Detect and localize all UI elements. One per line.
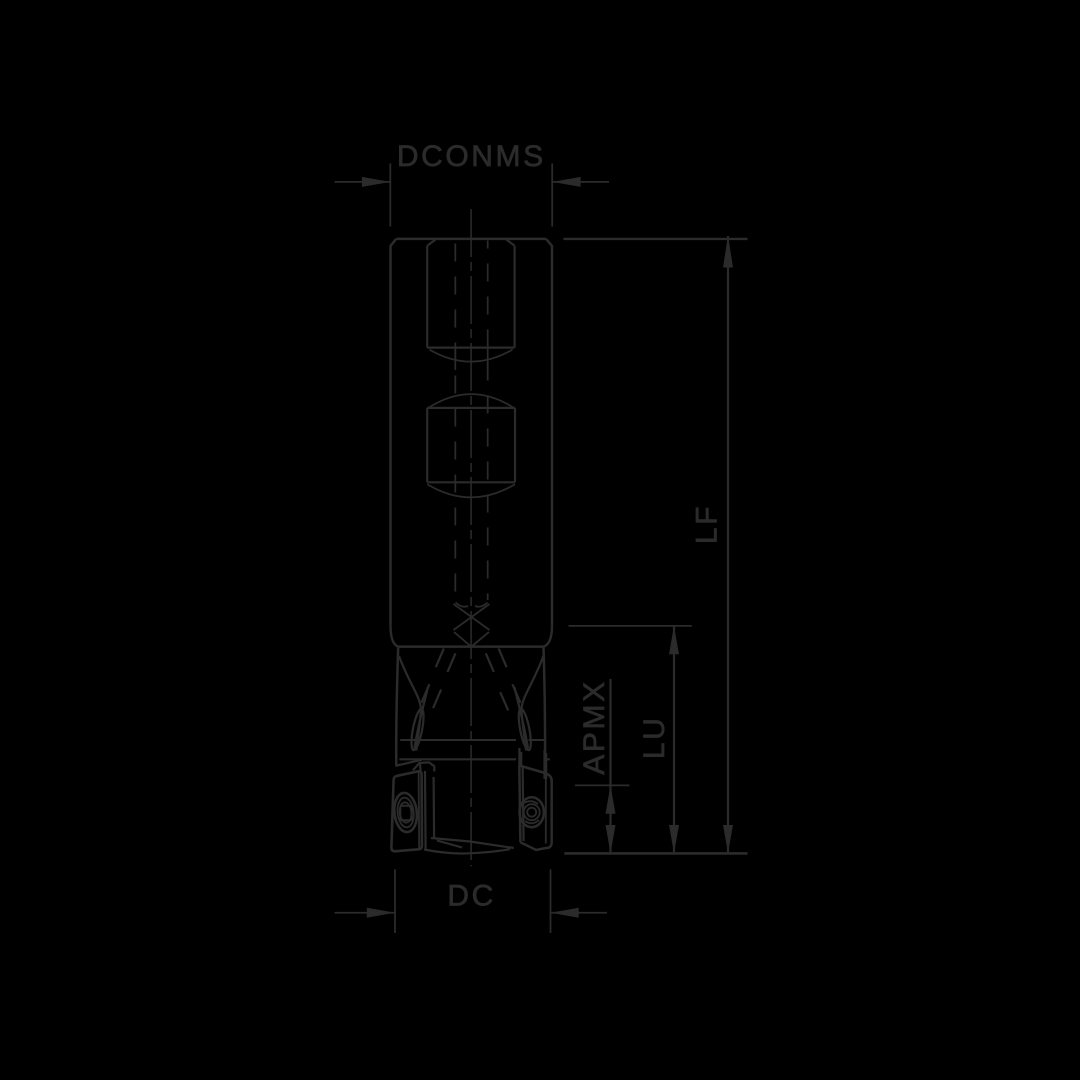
svg-text:LU: LU (638, 716, 671, 760)
svg-text:DCONMS: DCONMS (397, 140, 546, 173)
svg-text:LF: LF (691, 504, 724, 544)
svg-text:DC: DC (447, 879, 496, 912)
svg-text:APMX: APMX (578, 679, 611, 774)
